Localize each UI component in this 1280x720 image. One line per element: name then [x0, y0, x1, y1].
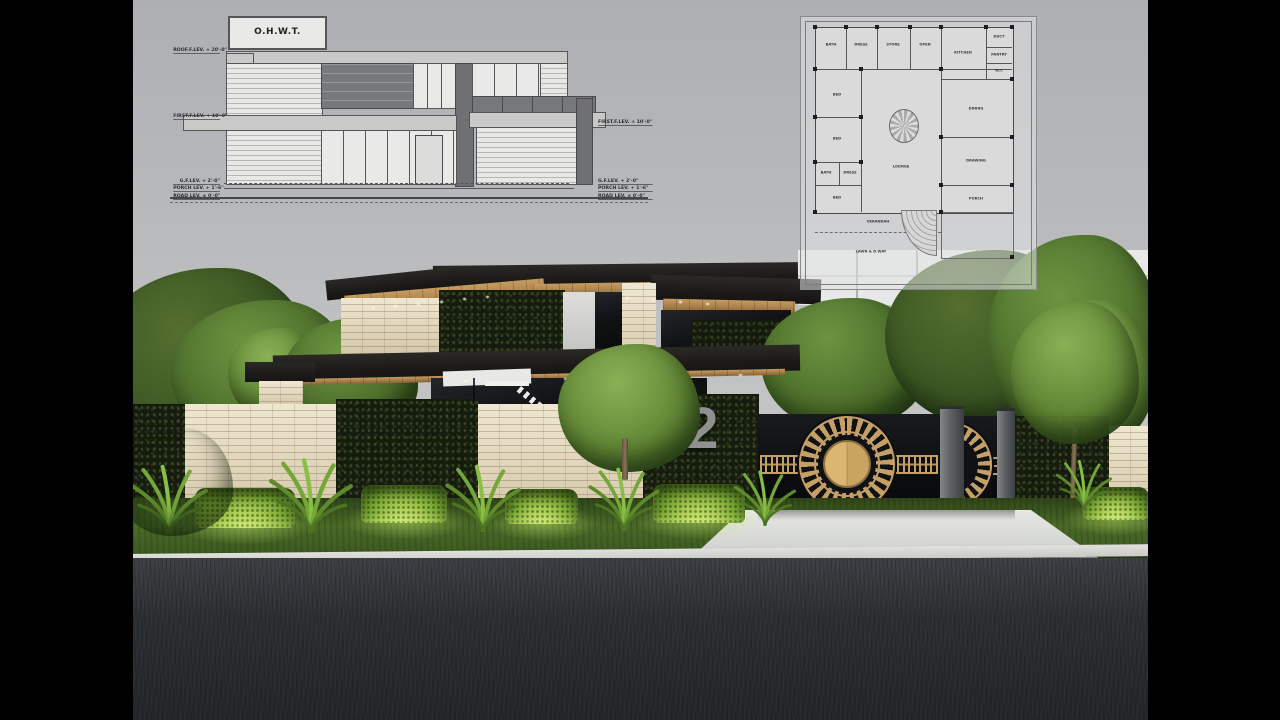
plan-column: [1010, 135, 1014, 139]
elevation-drawing: O.H.W.T. ROOF.F.LEV. + 20'-0" FIRST.F.LE…: [158, 14, 658, 214]
plan-wall: [846, 27, 847, 69]
downlight: [651, 298, 656, 302]
plan-wall: [839, 162, 840, 185]
plan-room-label: W.C: [995, 69, 1003, 73]
plan-wall: [986, 27, 987, 79]
elevation-upper-siding: [226, 63, 323, 118]
plan-wall: [941, 79, 1012, 80]
plan-wall: [815, 185, 861, 186]
plan-column: [859, 160, 863, 164]
plan-wall: [815, 69, 1012, 70]
downlight: [463, 379, 468, 383]
plan-room-label: BATH: [826, 43, 837, 47]
stone-pier-upper-left: [341, 298, 441, 354]
plan-room-label: BED: [833, 137, 841, 141]
plan-column: [813, 25, 817, 29]
plan-wall: [815, 162, 861, 163]
plan-column: [1010, 25, 1014, 29]
fern-plant: [265, 455, 357, 533]
plan-room-label: PORCH: [969, 197, 983, 201]
elevation-label-roof: ROOF.F.LEV. + 20'-0": [173, 48, 220, 54]
plan-column: [939, 135, 943, 139]
plan-room-label: BATH: [821, 171, 832, 175]
downlight: [439, 300, 444, 304]
plan-room-label: PANTRY: [991, 53, 1007, 57]
plan-room-label: OPEN: [919, 43, 930, 47]
plan-room-label: DUCT: [993, 35, 1004, 39]
plan-wall: [941, 137, 1012, 138]
plan-column: [939, 183, 943, 187]
plan-wall: [877, 27, 878, 69]
plan-column: [813, 115, 817, 119]
plan-room-label: LAWN & D.WAY: [856, 250, 887, 254]
front-tree-canopy: [558, 344, 700, 472]
floor-plan-drawing: BATH DRESS STORE OPEN DUCT KITCHEN PANTR…: [800, 16, 1037, 290]
plan-column: [939, 25, 943, 29]
downlight: [678, 300, 683, 304]
interior-staircase: [485, 381, 529, 386]
plan-column: [844, 25, 848, 29]
plan-column: [813, 210, 817, 214]
plan-room-label: LOUNGE: [893, 165, 910, 169]
downlight: [393, 304, 398, 308]
plan-wall: [861, 69, 862, 212]
elevation-road-dashed-line: [170, 202, 648, 203]
elevation-upper-dark-panel: [321, 63, 415, 109]
elevation-label-porch-right: PORCH LEV. + 1'-6": [598, 186, 653, 192]
asphalt-road: [133, 558, 1148, 720]
trimmed-hedge: [361, 485, 447, 523]
plan-room-label: BED: [833, 93, 841, 97]
elevation-ohwt-box: O.H.W.T.: [228, 16, 327, 50]
plan-column: [859, 67, 863, 71]
interior-white-wall: [563, 292, 595, 354]
plan-column: [875, 25, 879, 29]
elevation-label-first-right: FIRST.F.LEV. + 10'-0": [598, 120, 653, 126]
slender-tree-canopy: [1011, 302, 1139, 444]
downlight: [625, 296, 630, 300]
plan-wall: [910, 27, 911, 69]
plan-column: [813, 67, 817, 71]
upper-glass-window: [595, 292, 623, 352]
elevation-garage-door: [476, 127, 578, 185]
letterbox-left: [0, 0, 133, 720]
downlight: [371, 306, 376, 310]
elevation-label-road-right: ROAD LEV. ± 0'-0": [598, 194, 653, 200]
plan-column: [984, 25, 988, 29]
downlight: [485, 295, 490, 299]
plan-column: [1010, 183, 1014, 187]
elevation-upper-right-stripes: [540, 63, 568, 98]
video-frame: 52: [0, 0, 1280, 720]
plan-room-label: VERANDAH: [867, 220, 890, 224]
plan-room-label: DINING: [969, 107, 984, 111]
fern-plant: [1055, 455, 1113, 513]
plan-spiral-stair: [889, 109, 919, 143]
elevation-gf-siding: [226, 130, 323, 185]
plan-column: [908, 25, 912, 29]
plan-room-label: DRAWING: [966, 159, 986, 163]
trimmed-hedge: [653, 484, 745, 523]
plan-porch-outline: [941, 212, 1014, 259]
downlight: [462, 297, 467, 301]
fern-plant: [441, 462, 525, 532]
side-gate-medallion-partial: [964, 422, 992, 508]
elevation-label-first: FIRST.F.LEV. + 10'-0": [173, 114, 220, 120]
elevation-ground-line: [170, 197, 648, 199]
render-content: 52: [133, 0, 1148, 720]
plan-column: [859, 115, 863, 119]
downlight: [705, 302, 710, 306]
plan-column: [1010, 255, 1014, 259]
elevation-ohwt-label: O.H.W.T.: [230, 28, 325, 37]
carport-roof-left: [245, 362, 315, 382]
elevation-porch-line: [224, 188, 574, 189]
plan-room-label: KITCHEN: [954, 51, 972, 55]
plan-wall: [986, 47, 1012, 48]
elevation-label-porch: PORCH LEV. + 1'-6": [173, 186, 220, 192]
plan-wall: [941, 185, 1012, 186]
plan-room-label: STORE: [886, 43, 899, 47]
elevation-upper-right-windows: [472, 63, 542, 98]
elevation-label-road: ROAD LEV. ± 0'-0": [173, 194, 220, 200]
foreground-shrub-left: [133, 428, 233, 536]
downlight: [416, 302, 421, 306]
plan-room-label: DRESS: [843, 171, 856, 175]
elevation-upper-mullion-panel: [413, 63, 457, 109]
letterbox-right: [1148, 0, 1280, 720]
plan-room-label: BED: [833, 196, 841, 200]
elevation-gf-dashed-line: [224, 183, 569, 184]
downlight: [738, 373, 743, 377]
plan-wall: [986, 63, 1012, 64]
plan-column: [939, 67, 943, 71]
plan-wall: [815, 117, 861, 118]
elevation-right-pier: [576, 98, 593, 185]
elevation-entry-door: [415, 135, 443, 185]
fern-plant: [733, 468, 797, 526]
plan-room-label: DRESS: [854, 43, 867, 47]
plan-column: [1010, 77, 1014, 81]
plan-column: [939, 210, 943, 214]
plan-column: [813, 160, 817, 164]
fern-plant: [585, 465, 663, 531]
gate-medallion-disc: [823, 440, 871, 488]
vertical-garden-upper: [439, 290, 565, 356]
